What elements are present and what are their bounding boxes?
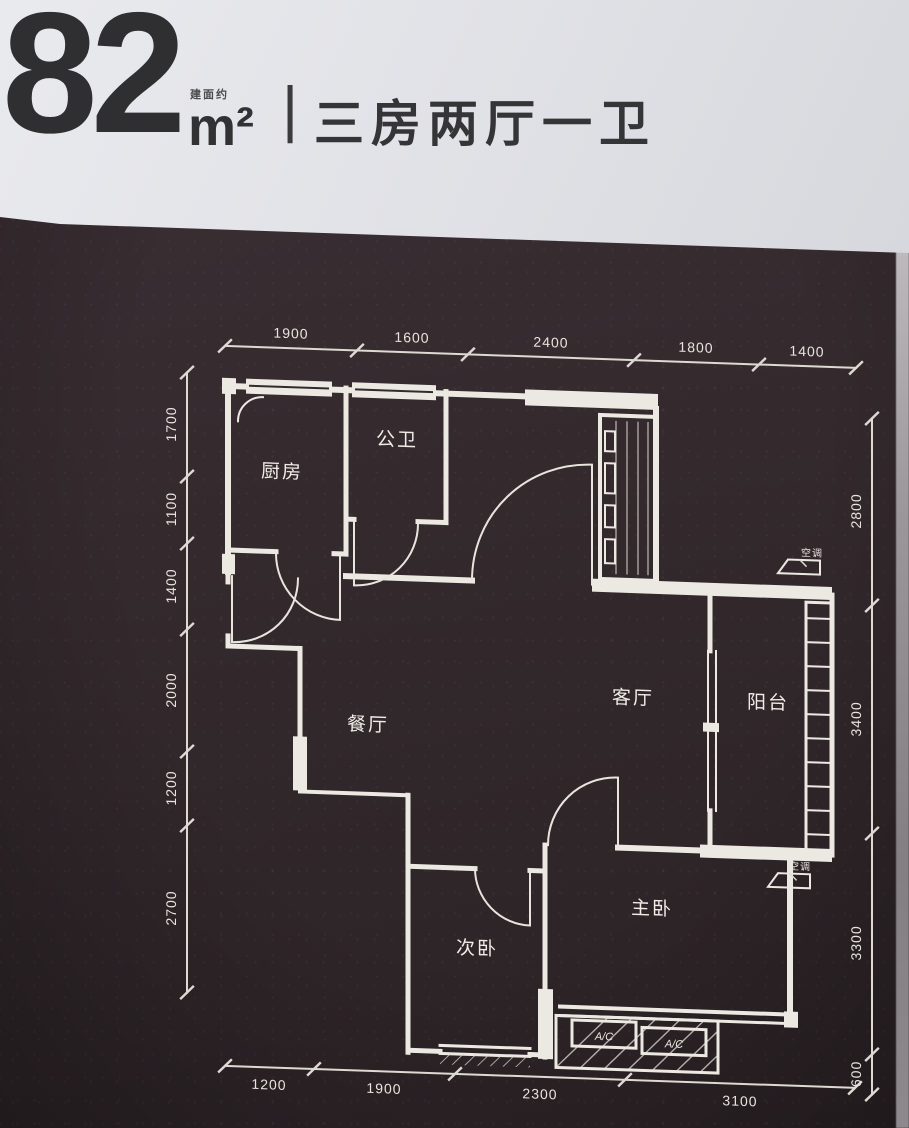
photo-of-floorplan-board: 82 建面约 m² | 三房两厅一卫 xyxy=(0,0,909,1128)
ac-outdoor-label-top: 空调 xyxy=(801,546,823,560)
dim-top-4: 1400 xyxy=(789,343,824,360)
dim-top-2: 2400 xyxy=(533,334,568,351)
dim-left-4: 1200 xyxy=(163,770,179,806)
dim-left-5: 2700 xyxy=(163,890,179,926)
dim-bottom-3: 3100 xyxy=(722,1092,757,1109)
dim-left-0: 1700 xyxy=(163,406,179,442)
floor-plan: 厨房 公卫 餐厅 客厅 阳台 次卧 主卧 A/C A/C 空调 空调 1900 … xyxy=(163,321,878,1114)
walls-layer xyxy=(222,378,832,1078)
dim-right-1: 3400 xyxy=(848,701,864,737)
second-bedroom-door-arc xyxy=(475,869,530,926)
dim-bottom-1: 1900 xyxy=(366,1080,401,1097)
dim-right-0: 2800 xyxy=(848,493,864,529)
dimension-lines xyxy=(181,338,878,1100)
master-door-arc xyxy=(548,775,618,847)
entry-door-arc xyxy=(232,576,298,644)
dim-top-0: 1900 xyxy=(273,325,308,342)
layout-description: 三房两厅一卫 xyxy=(314,84,656,156)
area-unit-block: 建面约 m² xyxy=(188,86,254,152)
dim-left-1: 1100 xyxy=(163,492,179,527)
room-label-second-bedroom: 次卧 xyxy=(456,937,498,960)
header-band: 82 建面约 m² | 三房两厅一卫 xyxy=(0,0,909,258)
header-divider: | xyxy=(282,74,298,145)
room-label-dining: 餐厅 xyxy=(347,713,389,736)
kitchen-door-arc xyxy=(276,554,340,620)
dim-top-1: 1600 xyxy=(394,329,429,346)
main-door-arc xyxy=(472,460,592,584)
room-label-living: 客厅 xyxy=(612,686,654,709)
dim-bottom-0: 1200 xyxy=(251,1076,286,1093)
area-unit: m² xyxy=(188,103,254,152)
dim-left-3: 2000 xyxy=(163,672,179,708)
area-value: 82 xyxy=(2,0,179,176)
room-label-master-bedroom: 主卧 xyxy=(631,897,673,920)
ac-outdoor-label-bottom: 空调 xyxy=(789,860,811,874)
dim-right-2: 3300 xyxy=(848,925,864,961)
room-label-kitchen: 厨房 xyxy=(261,460,303,483)
dim-left-2: 1400 xyxy=(163,568,179,604)
room-label-bathroom: 公卫 xyxy=(376,429,418,451)
dim-bottom-2: 2300 xyxy=(522,1085,557,1102)
photo-right-edge xyxy=(896,246,909,1128)
room-label-balcony: 阳台 xyxy=(747,691,789,714)
ac-unit-label-1: A/C xyxy=(594,1031,613,1044)
ac-unit-label-2: A/C xyxy=(664,1038,683,1051)
dim-right-3: 600 xyxy=(848,1060,864,1087)
labels-layer: 厨房 公卫 餐厅 客厅 阳台 次卧 主卧 A/C A/C 空调 空调 1900 … xyxy=(163,321,864,1113)
dim-top-3: 1800 xyxy=(678,339,713,356)
